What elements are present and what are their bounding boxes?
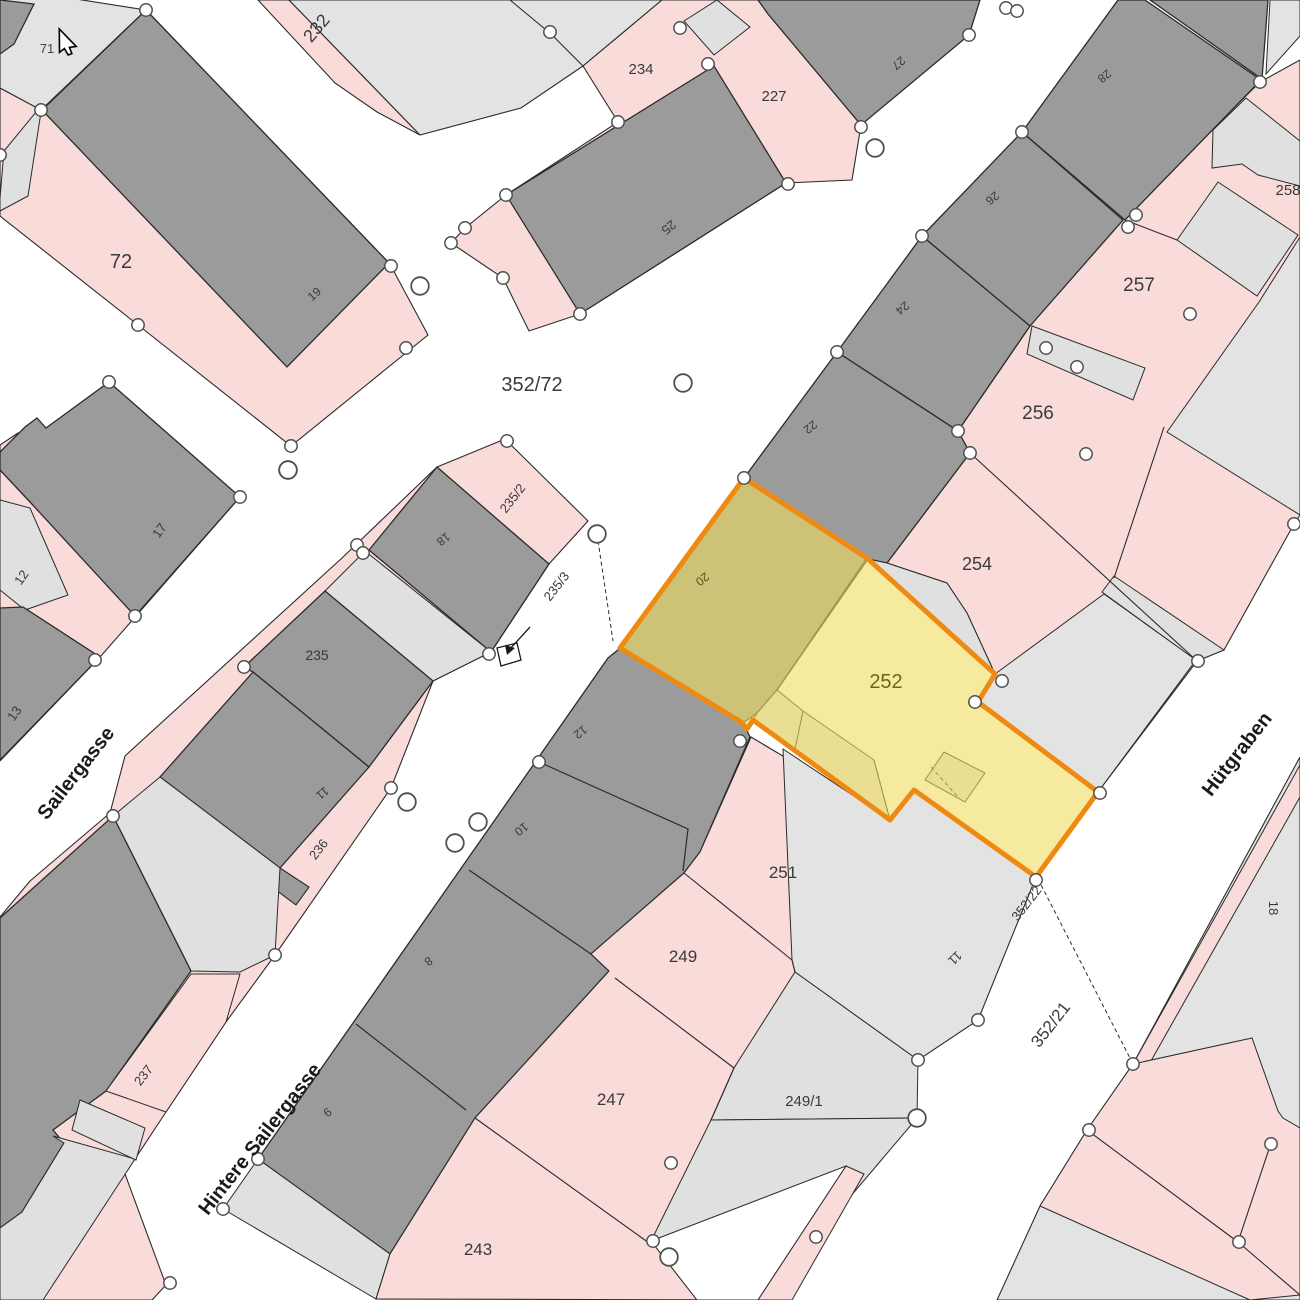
svg-text:227: 227 bbox=[761, 88, 786, 105]
svg-text:243: 243 bbox=[464, 1240, 492, 1259]
svg-text:234: 234 bbox=[628, 61, 653, 78]
svg-text:251: 251 bbox=[769, 863, 797, 882]
svg-text:249/1: 249/1 bbox=[785, 1093, 823, 1110]
svg-text:257: 257 bbox=[1123, 275, 1155, 296]
svg-text:252: 252 bbox=[869, 671, 902, 693]
svg-text:18: 18 bbox=[1266, 901, 1281, 915]
svg-text:254: 254 bbox=[962, 554, 992, 574]
svg-text:247: 247 bbox=[597, 1090, 625, 1109]
svg-text:72: 72 bbox=[110, 251, 132, 273]
svg-text:235: 235 bbox=[305, 647, 329, 663]
svg-text:256: 256 bbox=[1022, 403, 1054, 424]
svg-text:258: 258 bbox=[1275, 182, 1300, 199]
svg-text:71: 71 bbox=[40, 41, 54, 56]
svg-text:352/72: 352/72 bbox=[501, 374, 562, 396]
svg-text:249: 249 bbox=[669, 947, 697, 966]
